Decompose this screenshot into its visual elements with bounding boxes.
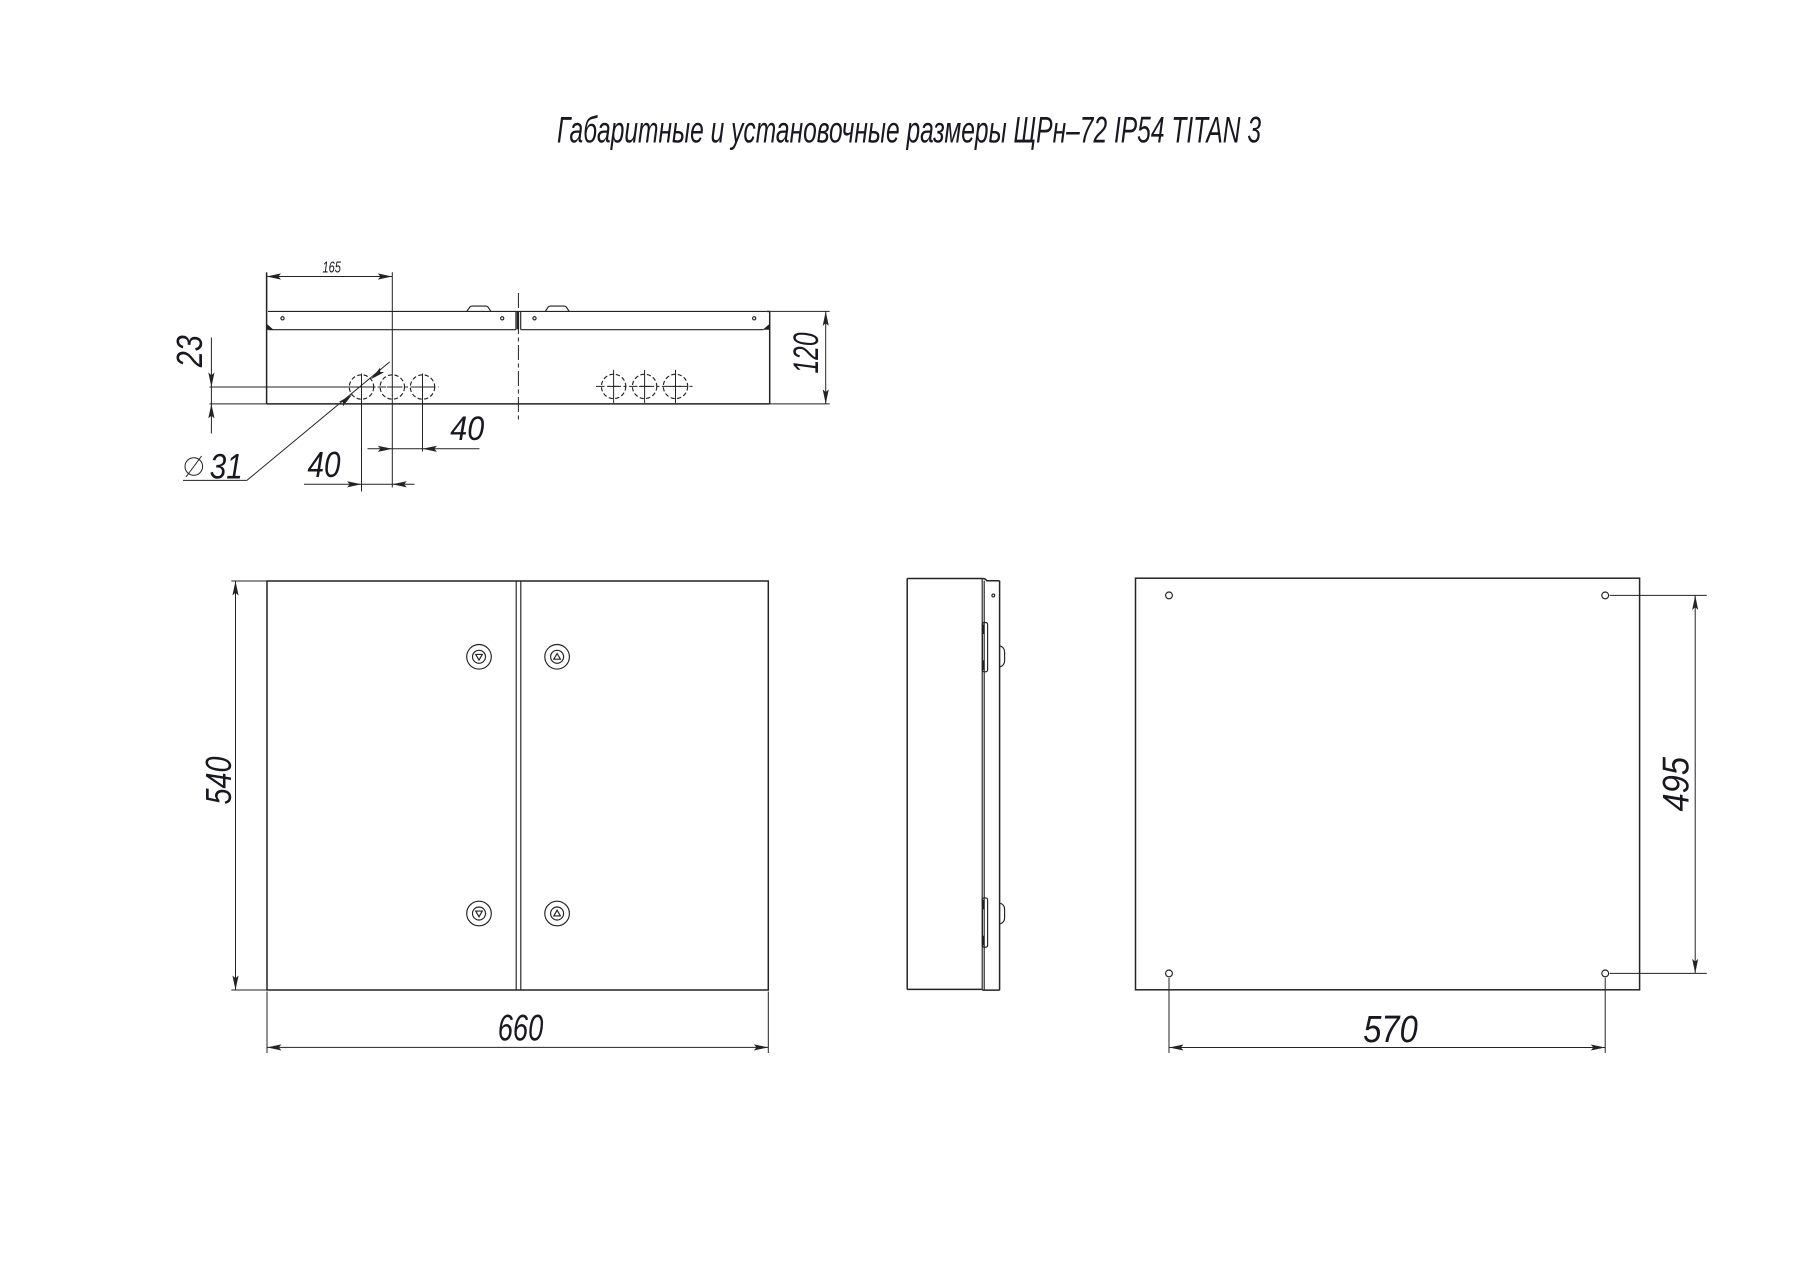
svg-text:540: 540 [198, 757, 239, 805]
svg-text:40: 40 [308, 444, 341, 485]
svg-text:570: 570 [1363, 1009, 1418, 1051]
svg-text:660: 660 [498, 1008, 544, 1049]
svg-text:165: 165 [322, 260, 341, 277]
svg-text:40: 40 [450, 410, 484, 448]
svg-text:31: 31 [210, 447, 243, 486]
svg-text:495: 495 [1656, 757, 1697, 812]
svg-text:120: 120 [787, 332, 826, 373]
svg-text:23: 23 [169, 335, 210, 368]
svg-text:Габаритные и установочные разм: Габаритные и установочные размеры ЩРн–72… [557, 109, 1261, 150]
